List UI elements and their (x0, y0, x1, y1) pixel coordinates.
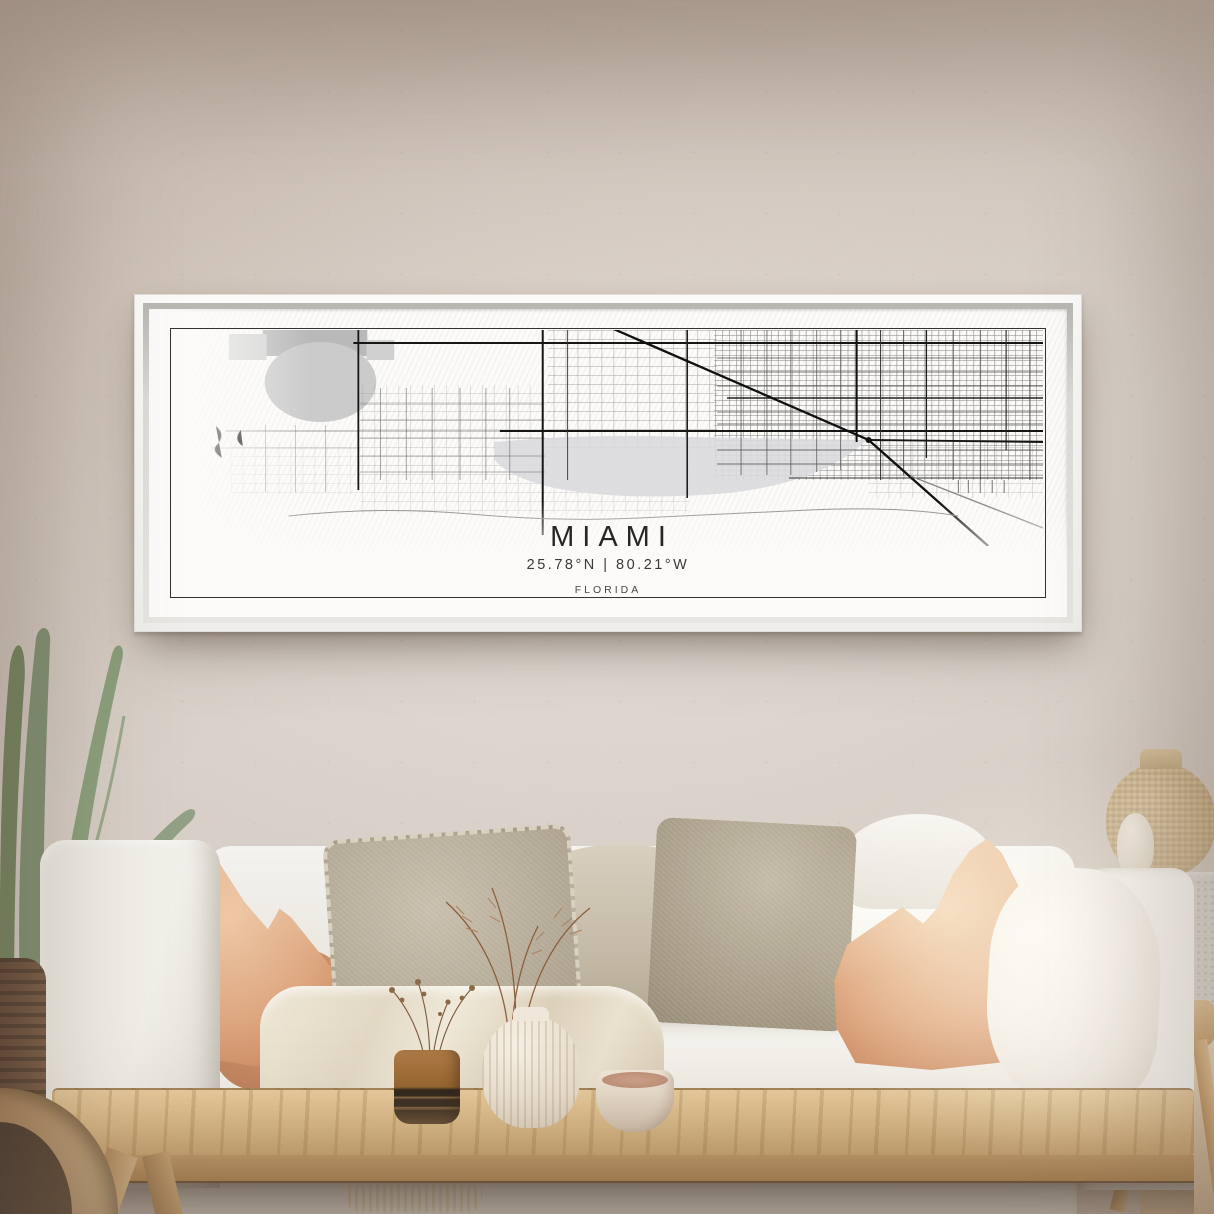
framed-map-print: MIAMI 25.78°N | 80.21°W FLORIDA (134, 294, 1082, 632)
woven-basket (0, 958, 46, 1108)
coffee-table-edge (52, 1155, 1194, 1183)
white-ribbed-vase (482, 1016, 580, 1128)
map-state-label: FLORIDA (149, 584, 1067, 596)
living-room-photo: MIAMI 25.78°N | 80.21°W FLORIDA (0, 0, 1214, 1214)
pillow-oat-right (647, 817, 857, 1032)
wooden-plant-pot (394, 1050, 460, 1124)
pillow-white-right (982, 864, 1166, 1108)
frame-floater-gap: MIAMI 25.78°N | 80.21°W FLORIDA (143, 303, 1073, 623)
map-title: MIAMI (149, 521, 1067, 554)
print-canvas: MIAMI 25.78°N | 80.21°W FLORIDA (149, 309, 1067, 617)
under-table-shadow (52, 1181, 1194, 1214)
map-coordinates: 25.78°N | 80.21°W (149, 557, 1067, 573)
print-text-block: MIAMI 25.78°N | 80.21°W FLORIDA (149, 521, 1067, 596)
